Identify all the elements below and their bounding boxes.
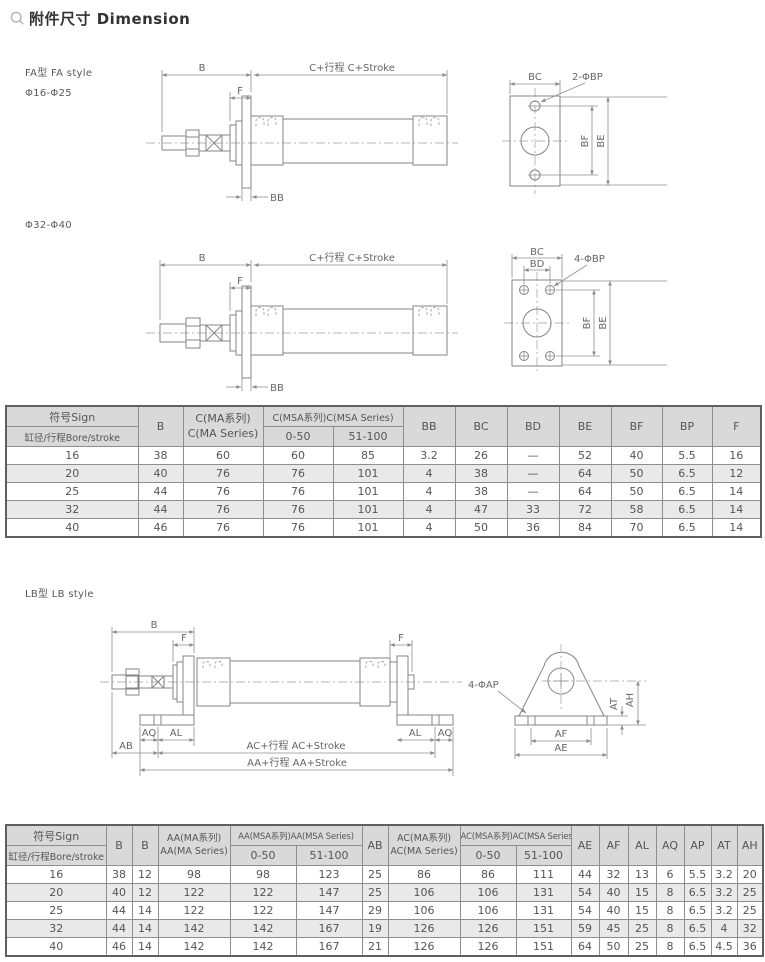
header-range-b: 51-100 xyxy=(296,846,362,866)
header-bb: BB xyxy=(403,406,455,447)
table-cell: 142 xyxy=(158,920,230,938)
table-cell: 25 xyxy=(362,884,388,902)
table-cell: 44 xyxy=(138,501,183,519)
table-cell: 44 xyxy=(571,866,599,884)
table-cell: 14 xyxy=(132,938,158,957)
table-cell: 6.5 xyxy=(684,920,711,938)
table-cell: 142 xyxy=(230,920,296,938)
table-cell: 26 xyxy=(455,447,507,465)
dim-label-be: BE xyxy=(596,134,607,147)
dim-label-c-stroke: C+行程 C+Stroke xyxy=(309,251,395,264)
table-cell: 6.5 xyxy=(662,519,712,538)
header-ae: AE xyxy=(571,825,599,866)
catalog-page: { "page": { "title": "附件尺寸 Dimension" },… xyxy=(0,0,765,962)
table-cell: 46 xyxy=(138,519,183,538)
fa-large-side-view: B C+行程 C+Stroke F BB xyxy=(146,251,458,394)
header-aq: AQ xyxy=(656,825,684,866)
table-cell: 126 xyxy=(388,938,460,957)
table-cell: — xyxy=(507,447,559,465)
table-cell: 98 xyxy=(158,866,230,884)
dim-label-c-stroke: C+行程 C+Stroke xyxy=(309,61,395,74)
table-cell: 147 xyxy=(296,902,362,920)
table-cell: 20 xyxy=(6,884,106,902)
table-cell: 32 xyxy=(6,920,106,938)
lb-dimension-table: 符号Sign B B AA(MA系列) AA(MA Series) AA(MSA… xyxy=(5,824,764,957)
table-cell: 36 xyxy=(507,519,559,538)
lb-table-body: 163812989812325868611144321365.53.220204… xyxy=(6,866,763,957)
dim-label-bf: BF xyxy=(580,134,591,147)
header-range-d: 51-100 xyxy=(516,846,571,866)
fa-small-side-view: B C+行程 C+Stroke F BB xyxy=(146,61,458,204)
table-cell: 25 xyxy=(737,902,763,920)
table-cell: 106 xyxy=(388,902,460,920)
table-cell: 29 xyxy=(362,902,388,920)
table-cell: 14 xyxy=(712,501,761,519)
table-cell: 44 xyxy=(138,483,183,501)
table-cell: 8 xyxy=(656,884,684,902)
table-cell: 76 xyxy=(263,519,333,538)
fa-large-flange-view: BC BD 4-ΦBP BF BE xyxy=(504,248,667,374)
header-bore: 缸径/行程Bore/stroke xyxy=(6,427,138,447)
lb-bracket-front-view: 4-ΦAP AT AH AF AE xyxy=(468,644,646,759)
table-cell: 76 xyxy=(263,465,333,483)
table-cell: 167 xyxy=(296,938,362,957)
dim-label-aq-right: AQ xyxy=(438,728,453,739)
header-bd: BD xyxy=(507,406,559,447)
dim-label-b: B xyxy=(151,620,158,631)
table-cell: 131 xyxy=(516,884,571,902)
header-range-c: 0-50 xyxy=(460,846,516,866)
table-cell: 50 xyxy=(611,483,662,501)
table-cell: 6.5 xyxy=(662,465,712,483)
table-cell: 32 xyxy=(6,501,138,519)
table-cell: 52 xyxy=(559,447,611,465)
lb-side-view: B F F AQ AL AL AQ AB AC+行程 AC+Stroke A xyxy=(100,620,462,776)
table-cell: 131 xyxy=(516,902,571,920)
table-row: 4046141421421672112612615164502586.54.53… xyxy=(6,938,763,957)
dim-label-bd: BD xyxy=(530,259,545,270)
table-cell: 33 xyxy=(507,501,559,519)
header-b2: B xyxy=(132,825,158,866)
table-cell: 76 xyxy=(183,519,263,538)
dim-label-4-ap: 4-ΦAP xyxy=(468,680,499,691)
table-cell: 13 xyxy=(628,866,656,884)
dim-label-f: F xyxy=(237,86,243,97)
table-cell: 25 xyxy=(628,920,656,938)
table-row: 2544141221221472910610613154401586.53.22… xyxy=(6,902,763,920)
table-cell: 59 xyxy=(571,920,599,938)
table-cell: 151 xyxy=(516,938,571,957)
table-cell: 5.5 xyxy=(684,866,711,884)
header-range-a: 0-50 xyxy=(230,846,296,866)
header-bf: BF xyxy=(611,406,662,447)
table-cell: 58 xyxy=(611,501,662,519)
table-cell: 44 xyxy=(106,902,132,920)
table-cell: 14 xyxy=(132,920,158,938)
table-cell: 64 xyxy=(559,465,611,483)
magnifier-icon xyxy=(10,11,25,26)
lb-table-header: 符号Sign B B AA(MA系列) AA(MA Series) AA(MSA… xyxy=(6,825,763,866)
table-cell: 86 xyxy=(460,866,516,884)
table-row: 3244141421421671912612615159452586.5432 xyxy=(6,920,763,938)
page-header: 附件尺寸 Dimension xyxy=(10,8,190,29)
table-cell: 101 xyxy=(333,483,403,501)
table-cell: 70 xyxy=(611,519,662,538)
table-row: 20407676101438—64506.512 xyxy=(6,465,761,483)
table-cell: 106 xyxy=(460,902,516,920)
table-cell: 126 xyxy=(460,920,516,938)
header-at: AT xyxy=(711,825,737,866)
table-cell: 122 xyxy=(158,884,230,902)
dim-label-al-left: AL xyxy=(170,728,183,739)
header-b1: B xyxy=(106,825,132,866)
table-cell: 101 xyxy=(333,465,403,483)
table-cell: 4 xyxy=(403,501,455,519)
table-cell: 123 xyxy=(296,866,362,884)
table-row: 324476761014473372586.514 xyxy=(6,501,761,519)
dim-label-ac-stroke: AC+行程 AC+Stroke xyxy=(246,739,345,752)
header-aa-msa: AA(MSA系列)AA(MSA Series) xyxy=(230,825,362,846)
table-cell: 84 xyxy=(559,519,611,538)
table-cell: 14 xyxy=(132,902,158,920)
table-cell: 4 xyxy=(403,465,455,483)
dim-label-2-bp: 2-ΦBP xyxy=(572,72,603,83)
fa-style-label: FA型 FA style xyxy=(25,64,92,79)
dim-label-f-right: F xyxy=(398,633,404,644)
table-cell: 3.2 xyxy=(711,866,737,884)
table-cell: 47 xyxy=(455,501,507,519)
fa-small-diagram: B C+行程 C+Stroke F BB BC 2-ΦBP xyxy=(140,58,700,210)
table-cell: 147 xyxy=(296,884,362,902)
fa-dimension-table: 符号Sign B C(MA系列) C(MA Series) C(MSA系列)C(… xyxy=(5,405,762,538)
table-cell: 32 xyxy=(599,866,628,884)
lb-diagram: B F F AQ AL AL AQ AB AC+行程 AC+Stroke A xyxy=(60,618,760,790)
table-cell: 6.5 xyxy=(662,501,712,519)
table-cell: 106 xyxy=(388,884,460,902)
header-sign: 符号Sign xyxy=(6,825,106,846)
table-row: 2040121221221472510610613154401586.53.22… xyxy=(6,884,763,902)
table-cell: 76 xyxy=(183,501,263,519)
table-cell: 4 xyxy=(403,483,455,501)
table-cell: 122 xyxy=(230,884,296,902)
header-ac-ma: AC(MA系列) AC(MA Series) xyxy=(388,825,460,866)
table-cell: 16 xyxy=(6,447,138,465)
dim-label-bc: BC xyxy=(528,72,542,83)
table-cell: 60 xyxy=(183,447,263,465)
table-cell: 60 xyxy=(263,447,333,465)
header-range-a: 0-50 xyxy=(263,427,333,447)
table-cell: 25 xyxy=(628,938,656,957)
header-af: AF xyxy=(599,825,628,866)
table-cell: 40 xyxy=(138,465,183,483)
table-cell: 15 xyxy=(628,902,656,920)
header-c-ma: C(MA系列) C(MA Series) xyxy=(183,406,263,447)
header-c-ma-line1: C(MA系列) xyxy=(184,412,263,427)
table-cell: 3.2 xyxy=(711,902,737,920)
table-cell: 40 xyxy=(6,938,106,957)
table-cell: 6.5 xyxy=(684,902,711,920)
header-ab: AB xyxy=(362,825,388,866)
table-cell: 40 xyxy=(611,447,662,465)
header-ac-ma-line2: AC(MA Series) xyxy=(389,846,460,859)
table-cell: 142 xyxy=(230,938,296,957)
table-cell: 3.2 xyxy=(711,884,737,902)
dim-label-f: F xyxy=(237,276,243,287)
table-cell: 122 xyxy=(158,902,230,920)
table-cell: 40 xyxy=(599,902,628,920)
table-cell: — xyxy=(507,465,559,483)
table-cell: 12 xyxy=(712,465,761,483)
dim-label-aq-left: AQ xyxy=(142,728,157,739)
table-cell: 38 xyxy=(455,483,507,501)
header-ah: AH xyxy=(737,825,763,866)
table-cell: 21 xyxy=(362,938,388,957)
table-cell: 40 xyxy=(106,884,132,902)
header-c-msa: C(MSA系列)C(MSA Series) xyxy=(263,406,403,427)
table-cell: 126 xyxy=(460,938,516,957)
table-cell: 76 xyxy=(263,501,333,519)
table-cell: 25 xyxy=(362,866,388,884)
table-cell: 38 xyxy=(138,447,183,465)
table-cell: 16 xyxy=(712,447,761,465)
table-cell: 54 xyxy=(571,902,599,920)
dim-label-bb: BB xyxy=(270,193,284,204)
table-cell: 25 xyxy=(6,483,138,501)
table-cell: 64 xyxy=(559,483,611,501)
header-b: B xyxy=(138,406,183,447)
table-cell: 4 xyxy=(403,519,455,538)
fa-range-small-label: Φ16-Φ25 xyxy=(25,88,72,99)
table-cell: 8 xyxy=(656,920,684,938)
dim-label-bf: BF xyxy=(582,316,593,329)
table-cell: — xyxy=(507,483,559,501)
table-cell: 44 xyxy=(106,920,132,938)
fa-range-large-label: Φ32-Φ40 xyxy=(25,220,72,231)
table-cell: 46 xyxy=(106,938,132,957)
fa-table-header: 符号Sign B C(MA系列) C(MA Series) C(MSA系列)C(… xyxy=(6,406,761,447)
table-cell: 98 xyxy=(230,866,296,884)
table-cell: 8 xyxy=(656,938,684,957)
header-aa-ma-line2: AA(MA Series) xyxy=(159,846,230,859)
table-cell: 122 xyxy=(230,902,296,920)
lb-style-label: LB型 LB style xyxy=(25,585,94,600)
table-cell: 6.5 xyxy=(684,884,711,902)
header-be: BE xyxy=(559,406,611,447)
dim-label-4-bp: 4-ΦBP xyxy=(574,254,605,265)
fa-small-flange-view: BC 2-ΦBP BF BE xyxy=(502,72,667,194)
dim-label-ae: AE xyxy=(554,743,567,754)
dim-label-bc: BC xyxy=(530,248,544,258)
table-cell: 54 xyxy=(571,884,599,902)
table-cell: 14 xyxy=(712,519,761,538)
dim-label-f-left: F xyxy=(181,633,187,644)
table-cell: 14 xyxy=(712,483,761,501)
page-title: 附件尺寸 Dimension xyxy=(29,8,190,29)
table-cell: 167 xyxy=(296,920,362,938)
table-cell: 151 xyxy=(516,920,571,938)
table-cell: 6 xyxy=(656,866,684,884)
table-cell: 3.2 xyxy=(403,447,455,465)
header-c-ma-line2: C(MA Series) xyxy=(184,427,263,442)
table-cell: 72 xyxy=(559,501,611,519)
dim-label-bb: BB xyxy=(270,383,284,394)
dim-label-al-right: AL xyxy=(409,728,422,739)
table-cell: 40 xyxy=(6,519,138,538)
table-cell: 5.5 xyxy=(662,447,712,465)
header-ap: AP xyxy=(684,825,711,866)
header-bore: 缸径/行程Bore/stroke xyxy=(6,846,106,866)
table-cell: 86 xyxy=(388,866,460,884)
header-aa-ma-line1: AA(MA系列) xyxy=(159,833,230,846)
table-cell: 111 xyxy=(516,866,571,884)
table-cell: 45 xyxy=(599,920,628,938)
table-cell: 40 xyxy=(599,884,628,902)
table-cell: 36 xyxy=(737,938,763,957)
header-aa-ma: AA(MA系列) AA(MA Series) xyxy=(158,825,230,866)
table-cell: 32 xyxy=(737,920,763,938)
table-cell: 38 xyxy=(106,866,132,884)
dim-label-be: BE xyxy=(598,316,609,329)
table-cell: 50 xyxy=(611,465,662,483)
fa-large-diagram: B C+行程 C+Stroke F BB BC BD 4-ΦBP xyxy=(140,248,700,400)
header-al: AL xyxy=(628,825,656,866)
header-f: F xyxy=(712,406,761,447)
table-cell: 101 xyxy=(333,501,403,519)
table-cell: 4.5 xyxy=(711,938,737,957)
dim-label-ah: AH xyxy=(625,693,636,707)
table-cell: 6.5 xyxy=(662,483,712,501)
header-range-b: 51-100 xyxy=(333,427,403,447)
table-cell: 50 xyxy=(599,938,628,957)
dim-label-at: AT xyxy=(609,697,620,710)
table-row: 163812989812325868611144321365.53.220 xyxy=(6,866,763,884)
table-row: 16386060853.226—52405.516 xyxy=(6,447,761,465)
table-cell: 142 xyxy=(158,938,230,957)
table-cell: 50 xyxy=(455,519,507,538)
table-cell: 76 xyxy=(183,465,263,483)
table-cell: 20 xyxy=(6,465,138,483)
header-ac-msa: AC(MSA系列)AC(MSA Series) xyxy=(460,825,571,846)
table-cell: 6.5 xyxy=(684,938,711,957)
table-row: 404676761014503684706.514 xyxy=(6,519,761,538)
table-cell: 106 xyxy=(460,884,516,902)
table-cell: 4 xyxy=(711,920,737,938)
table-cell: 16 xyxy=(6,866,106,884)
dim-label-b: B xyxy=(199,253,206,264)
table-row: 25447676101438—64506.514 xyxy=(6,483,761,501)
table-cell: 19 xyxy=(362,920,388,938)
table-cell: 76 xyxy=(183,483,263,501)
table-cell: 8 xyxy=(656,902,684,920)
table-cell: 64 xyxy=(571,938,599,957)
table-cell: 12 xyxy=(132,866,158,884)
dim-label-b: B xyxy=(199,63,206,74)
table-cell: 12 xyxy=(132,884,158,902)
dim-label-ab: AB xyxy=(119,741,133,752)
table-cell: 101 xyxy=(333,519,403,538)
header-ac-ma-line1: AC(MA系列) xyxy=(389,833,460,846)
header-bp: BP xyxy=(662,406,712,447)
table-cell: 25 xyxy=(6,902,106,920)
table-cell: 76 xyxy=(263,483,333,501)
table-cell: 126 xyxy=(388,920,460,938)
fa-table-body: 16386060853.226—52405.51620407676101438—… xyxy=(6,447,761,538)
table-cell: 25 xyxy=(737,884,763,902)
table-cell: 38 xyxy=(455,465,507,483)
table-cell: 20 xyxy=(737,866,763,884)
table-cell: 15 xyxy=(628,884,656,902)
header-sign: 符号Sign xyxy=(6,406,138,427)
table-cell: 85 xyxy=(333,447,403,465)
header-bc: BC xyxy=(455,406,507,447)
dim-label-aa-stroke: AA+行程 AA+Stroke xyxy=(247,756,347,769)
dim-label-af: AF xyxy=(555,729,568,740)
